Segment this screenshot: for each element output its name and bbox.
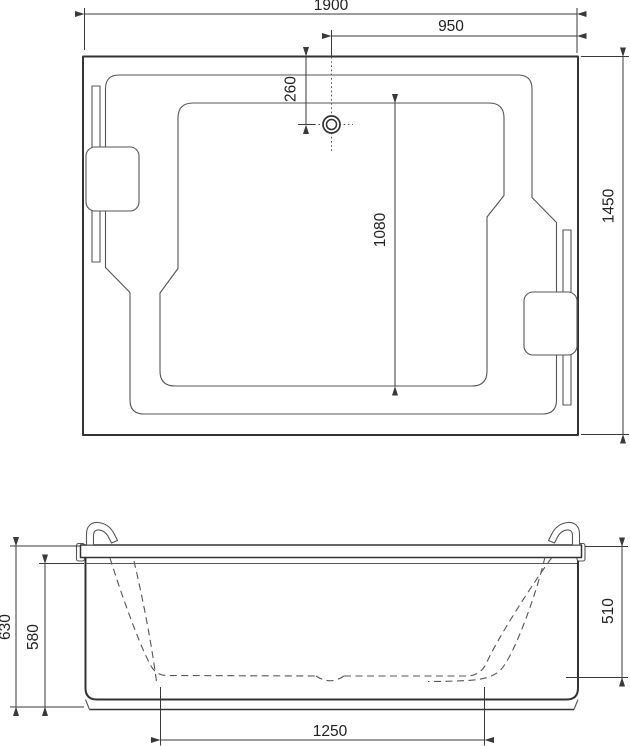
dim-label-1080: 1080	[372, 212, 389, 247]
bathtub-technical-drawing: 1900 950 260 1080 1450	[0, 0, 630, 746]
dim-label-1900: 1900	[314, 0, 349, 14]
dim-label-580: 580	[25, 624, 42, 650]
dim-overall-depth: 1450	[581, 57, 629, 435]
front-view: 630 580 510 1250	[0, 522, 628, 745]
headrest-right	[524, 292, 577, 355]
dim-base-length: 1250	[161, 687, 485, 746]
dim-overall-width: 1900	[85, 0, 578, 53]
drawing-canvas: 1900 950 260 1080 1450	[0, 0, 630, 746]
base-corner-left	[86, 700, 90, 710]
dim-drain-from-top-edge: 260	[283, 57, 316, 125]
rim-band	[81, 545, 582, 558]
dim-label-630: 630	[0, 614, 14, 640]
drain	[310, 30, 353, 152]
dim-label-1250: 1250	[313, 723, 348, 740]
tub-front-body	[86, 557, 579, 700]
base-corner-right	[574, 700, 578, 710]
dim-label-1450: 1450	[601, 188, 618, 223]
dim-inner-depth: 510	[566, 547, 628, 678]
drain-outer-circle	[323, 116, 340, 133]
dim-label-260: 260	[283, 76, 300, 102]
rim-hook-left	[87, 522, 118, 545]
headrest-left	[86, 147, 139, 211]
dim-drain-to-right-edge: 950	[332, 18, 578, 36]
top-view: 1900 950 260 1080 1450	[83, 0, 629, 435]
rim-hook-right	[549, 522, 580, 545]
basin-hidden-profile	[110, 557, 552, 682]
dim-label-510: 510	[600, 598, 617, 624]
dim-label-950: 950	[438, 18, 464, 35]
dim-total-height: 630	[0, 546, 84, 707]
dim-basin-inner-length: 1080	[372, 104, 395, 387]
dim-shell-height: 580	[25, 564, 84, 707]
